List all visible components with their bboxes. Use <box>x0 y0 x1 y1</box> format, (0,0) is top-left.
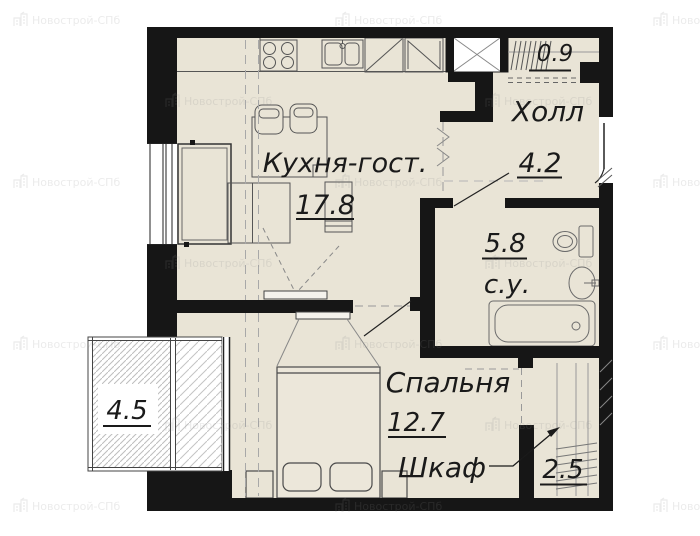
bedroom-area: 12.7 <box>387 408 445 438</box>
balcony-area: 4.5 <box>106 396 147 426</box>
tv-icon <box>296 312 350 319</box>
sofa <box>178 140 231 247</box>
watermark-text: Новострой-СПб <box>184 257 272 270</box>
kitchen-window <box>147 143 177 245</box>
watermark-text: Новострой-СПб <box>354 14 442 27</box>
floor-plan: Кухня-гост. 17.8 Холл 4.2 0.9 5.8 с.у. С… <box>0 0 700 536</box>
bedroom-label: Спальня <box>386 366 511 399</box>
watermark-text: Новострой-СПб <box>504 257 592 270</box>
watermark-text: Новострой-СПб <box>354 338 442 351</box>
hall-area: 4.2 <box>519 148 562 179</box>
kitchen-living-area: 17.8 <box>295 190 355 221</box>
watermark-text: Новострой-СПб <box>354 176 442 189</box>
bedroom-window <box>222 337 230 471</box>
nightstand <box>246 471 273 498</box>
wardrobe-label: Шкаф <box>398 451 486 484</box>
watermark-text: Новострой-СПб <box>32 176 120 189</box>
pillow <box>283 463 321 491</box>
entry-storage-area: 0.9 <box>537 41 574 67</box>
bathroom-area: 5.8 <box>484 229 525 259</box>
watermark-text: Новострой-СПб <box>504 419 592 432</box>
watermark-text: Новострой-СПб <box>184 419 272 432</box>
floor-plan-page: Кухня-гост. 17.8 Холл 4.2 0.9 5.8 с.у. С… <box>0 0 700 536</box>
watermark-text: Новострой-СПб <box>32 500 120 513</box>
watermark-text: Новострой-СПб <box>504 95 592 108</box>
tv-icon <box>264 291 327 299</box>
watermark-text: Новострой-СПб <box>32 338 120 351</box>
pillow <box>330 463 372 491</box>
watermark-text: Новострой-СПб <box>672 338 700 351</box>
watermark-text: Новострой-СПб <box>184 95 272 108</box>
watermark-text: Новострой-СПб <box>354 500 442 513</box>
watermark-text: Новострой-СПб <box>672 176 700 189</box>
watermark-text: Новострой-СПб <box>672 14 700 27</box>
vent-shaft-icon <box>446 37 508 72</box>
wardrobe-area: 2.5 <box>542 455 583 485</box>
bathroom-label: с.у. <box>484 270 530 300</box>
watermark-text: Новострой-СПб <box>32 14 120 27</box>
watermark-text: Новострой-СПб <box>672 500 700 513</box>
